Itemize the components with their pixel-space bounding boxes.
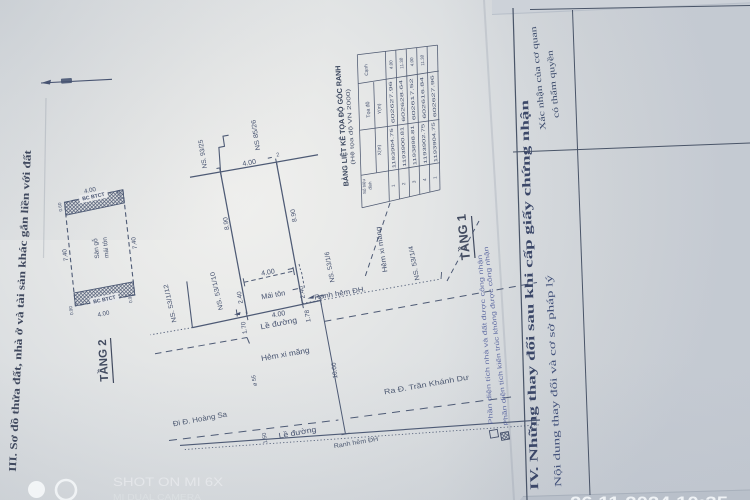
svg-text:X(m): X(m) [376, 144, 383, 155]
svg-text:4.00: 4.00 [388, 60, 394, 70]
svg-text:TẦNG 2: TẦNG 2 [96, 339, 111, 382]
svg-text:Tọa độ: Tọa độ [365, 101, 372, 118]
svg-text:26.11.2024 10:35: 26.11.2024 10:35 [570, 493, 728, 500]
svg-text:11.30: 11.30 [419, 54, 425, 66]
svg-text:11.30: 11.30 [399, 57, 405, 69]
svg-text:Cạnh: Cạnh [363, 64, 370, 76]
svg-text:đỉnh: đỉnh [367, 181, 373, 190]
svg-text:Y(m): Y(m) [376, 103, 383, 114]
svg-text:SHOT ON MI 6X: SHOT ON MI 6X [113, 477, 223, 489]
svg-text:4.00: 4.00 [409, 57, 415, 67]
svg-text:MI DUAL CAMERA: MI DUAL CAMERA [113, 492, 201, 500]
